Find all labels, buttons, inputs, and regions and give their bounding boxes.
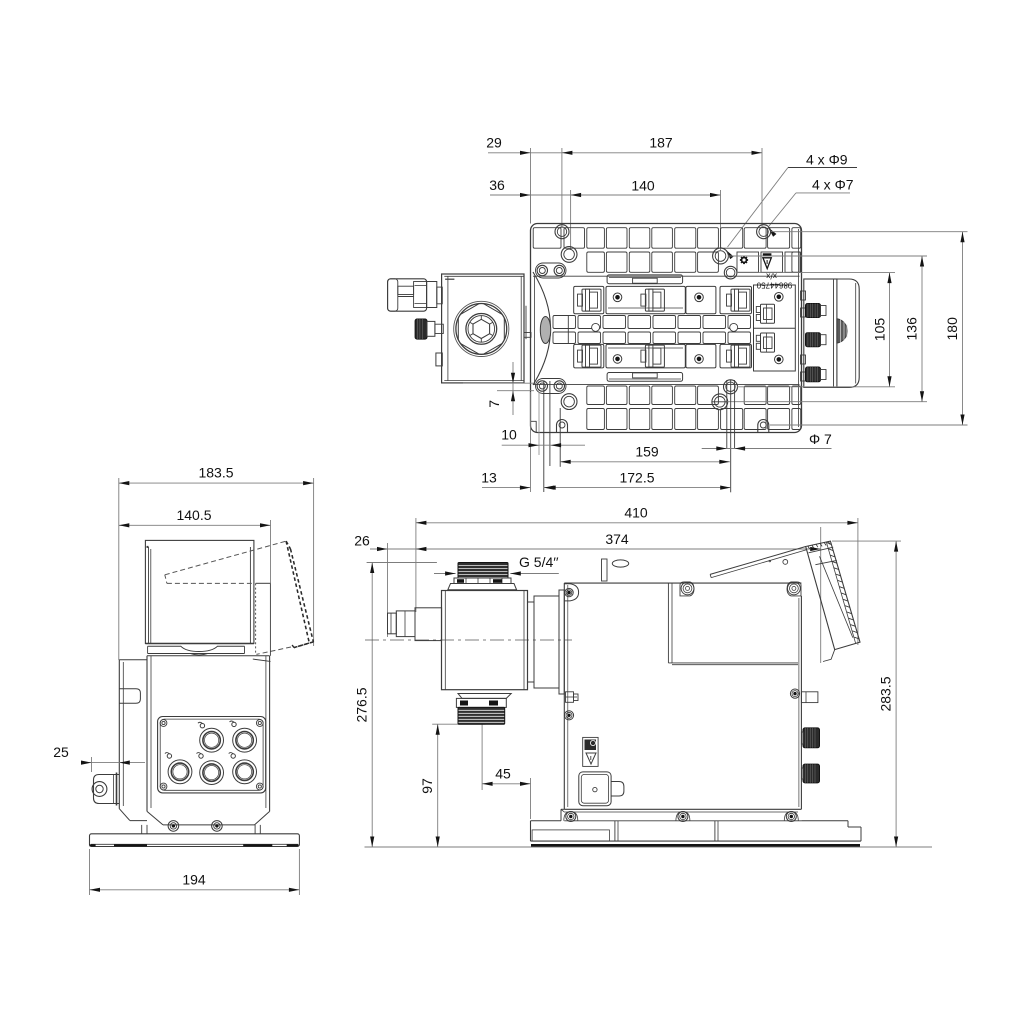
svg-text:4 x Φ7: 4 x Φ7 bbox=[812, 176, 854, 192]
svg-text:4 x Φ9: 4 x Φ9 bbox=[806, 152, 848, 168]
svg-text:136: 136 bbox=[904, 317, 920, 341]
svg-text:187: 187 bbox=[649, 135, 673, 151]
svg-text:45: 45 bbox=[495, 765, 511, 781]
svg-text:36: 36 bbox=[489, 177, 505, 193]
svg-text:172.5: 172.5 bbox=[619, 469, 654, 485]
svg-text:410: 410 bbox=[624, 504, 648, 520]
svg-text:140.5: 140.5 bbox=[176, 507, 211, 523]
svg-text:98644750: 98644750 bbox=[756, 281, 792, 290]
svg-text:183.5: 183.5 bbox=[198, 465, 233, 481]
svg-text:105: 105 bbox=[872, 318, 888, 342]
svg-text:29: 29 bbox=[486, 135, 502, 151]
svg-text:7: 7 bbox=[486, 400, 502, 408]
svg-text:374: 374 bbox=[605, 531, 629, 547]
svg-text:Φ 7: Φ 7 bbox=[809, 431, 832, 447]
svg-text:180: 180 bbox=[944, 317, 960, 341]
svg-text:10: 10 bbox=[501, 427, 517, 443]
svg-text:G 5/4′′: G 5/4′′ bbox=[519, 554, 559, 570]
svg-text:97: 97 bbox=[419, 778, 435, 794]
svg-text:194: 194 bbox=[182, 871, 206, 887]
svg-text:283.5: 283.5 bbox=[878, 676, 894, 711]
svg-text:140: 140 bbox=[631, 178, 655, 194]
svg-text:26: 26 bbox=[354, 532, 370, 548]
svg-text:13: 13 bbox=[481, 469, 497, 485]
svg-text:159: 159 bbox=[635, 444, 659, 460]
svg-text:276.5: 276.5 bbox=[354, 687, 370, 722]
svg-text:25: 25 bbox=[53, 744, 69, 760]
